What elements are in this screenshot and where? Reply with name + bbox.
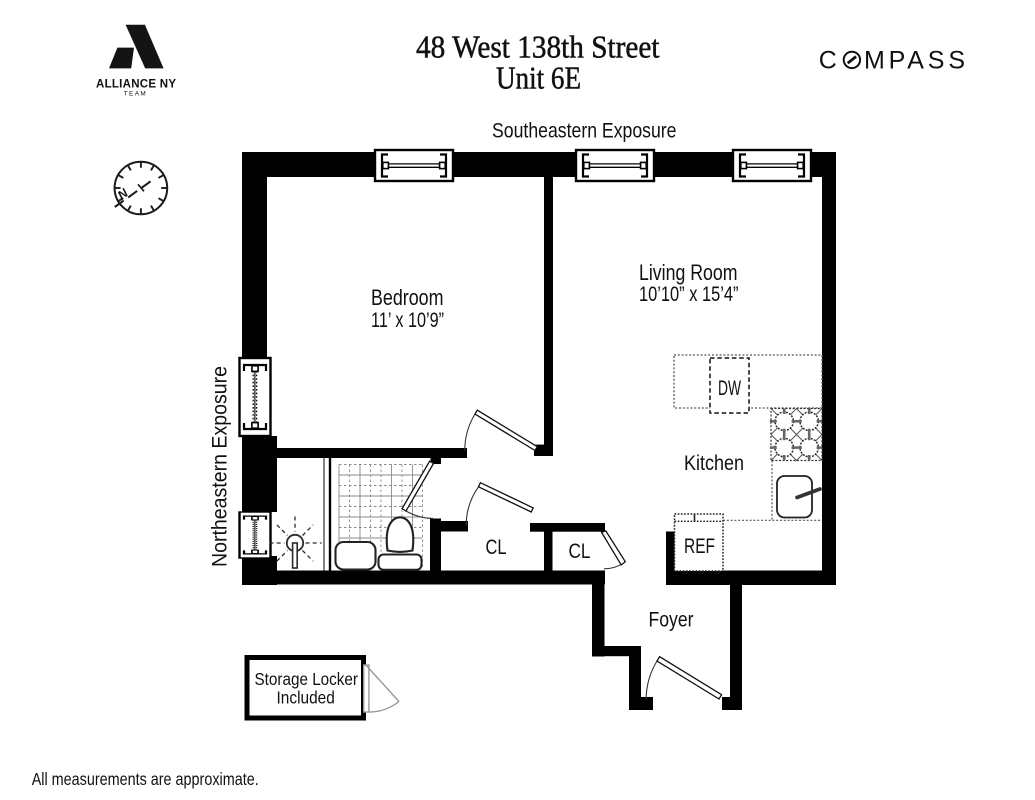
svg-text:48 West 138th Street: 48 West 138th Street [416,29,660,64]
svg-text:Southeastern Exposure: Southeastern Exposure [492,120,677,143]
svg-text:ALLIANCE NY: ALLIANCE NY [96,79,176,91]
svg-text:MPASS: MPASS [864,46,965,74]
svg-text:TEAM: TEAM [124,90,146,97]
svg-text:CL: CL [569,540,591,563]
svg-text:All measurements are approxima: All measurements are approximate. [32,769,259,789]
svg-text:Unit 6E: Unit 6E [496,61,581,96]
svg-text:DW: DW [718,377,741,400]
svg-text:CL: CL [486,536,507,559]
svg-text:11’ x 10’9”: 11’ x 10’9” [371,309,444,332]
svg-text:Storage Locker: Storage Locker [255,669,359,689]
svg-text:Living Room: Living Room [639,260,738,285]
svg-text:Bedroom: Bedroom [371,285,444,310]
svg-text:Northeastern Exposure: Northeastern Exposure [209,366,232,567]
svg-text:Kitchen: Kitchen [684,452,744,475]
svg-text:Foyer: Foyer [649,609,694,632]
svg-text:C: C [819,46,837,74]
svg-text:10’10” x 15’4”: 10’10” x 15’4” [639,283,739,306]
svg-text:REF: REF [684,535,715,558]
svg-text:Included: Included [277,687,335,707]
